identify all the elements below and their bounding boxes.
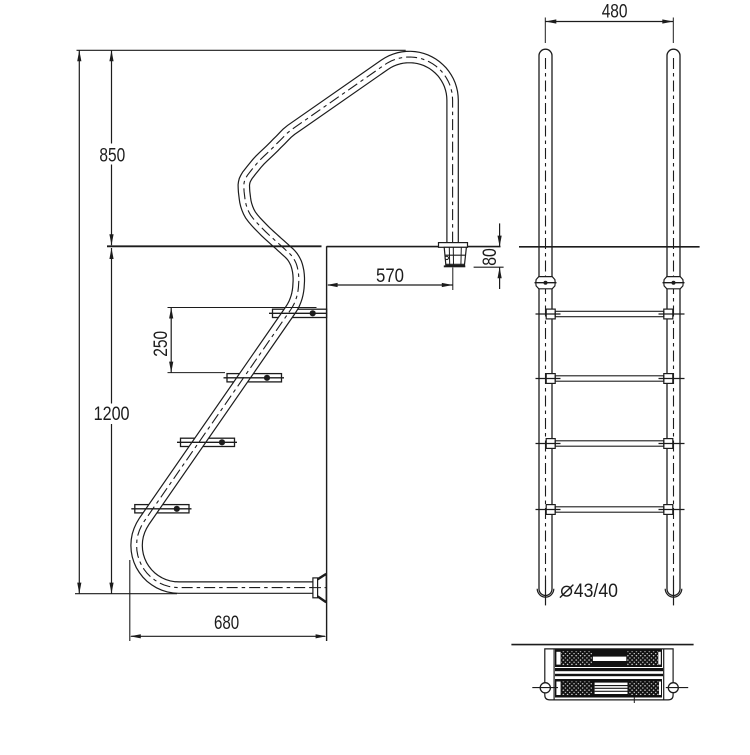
svg-text:480: 480: [602, 0, 628, 22]
svg-text:80: 80: [478, 248, 500, 266]
svg-text:43/40: 43/40: [574, 579, 618, 601]
svg-text:570: 570: [376, 265, 404, 286]
svg-text:850: 850: [99, 144, 125, 166]
svg-text:1200: 1200: [94, 403, 130, 425]
svg-text:250: 250: [150, 331, 172, 357]
svg-text:680: 680: [214, 611, 239, 633]
